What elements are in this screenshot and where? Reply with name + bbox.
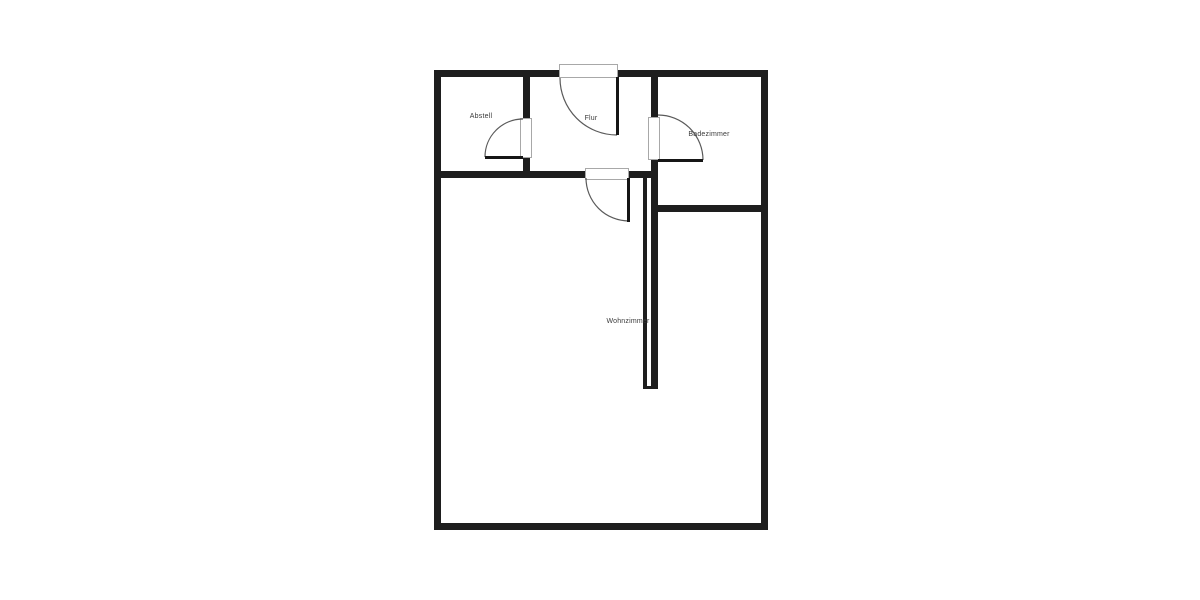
partition-wall-end-cap xyxy=(643,386,658,389)
door-opening-entrance xyxy=(559,64,618,78)
room-flur xyxy=(530,77,651,171)
door-leaf-entrance xyxy=(616,77,619,135)
door-leaf-abstell xyxy=(485,156,523,159)
wall-outer-left xyxy=(434,70,441,530)
door-opening-wohnzimmer xyxy=(585,168,629,180)
room-label-badezimmer: Badezimmer xyxy=(688,131,729,139)
wall-outer-right xyxy=(761,70,768,530)
door-opening-abstell xyxy=(520,118,532,158)
wall-outer-bottom xyxy=(434,523,768,530)
room-label-abstell: Abstell xyxy=(470,113,492,121)
partition-wall-inner-line xyxy=(643,178,647,389)
room-label-flur: Flur xyxy=(585,115,598,123)
door-leaf-wohnzimmer xyxy=(627,178,630,222)
floorplan-canvas: Abstell Flur Badezimmer Wohnzimmer xyxy=(0,0,1200,600)
room-label-wohnzimmer: Wohnzimmer xyxy=(606,318,649,326)
door-leaf-badezimmer xyxy=(658,159,703,162)
wall-badezimmer-bottom xyxy=(651,205,768,212)
room-wohnzimmer xyxy=(441,178,761,523)
door-opening-badezimmer xyxy=(648,117,660,160)
